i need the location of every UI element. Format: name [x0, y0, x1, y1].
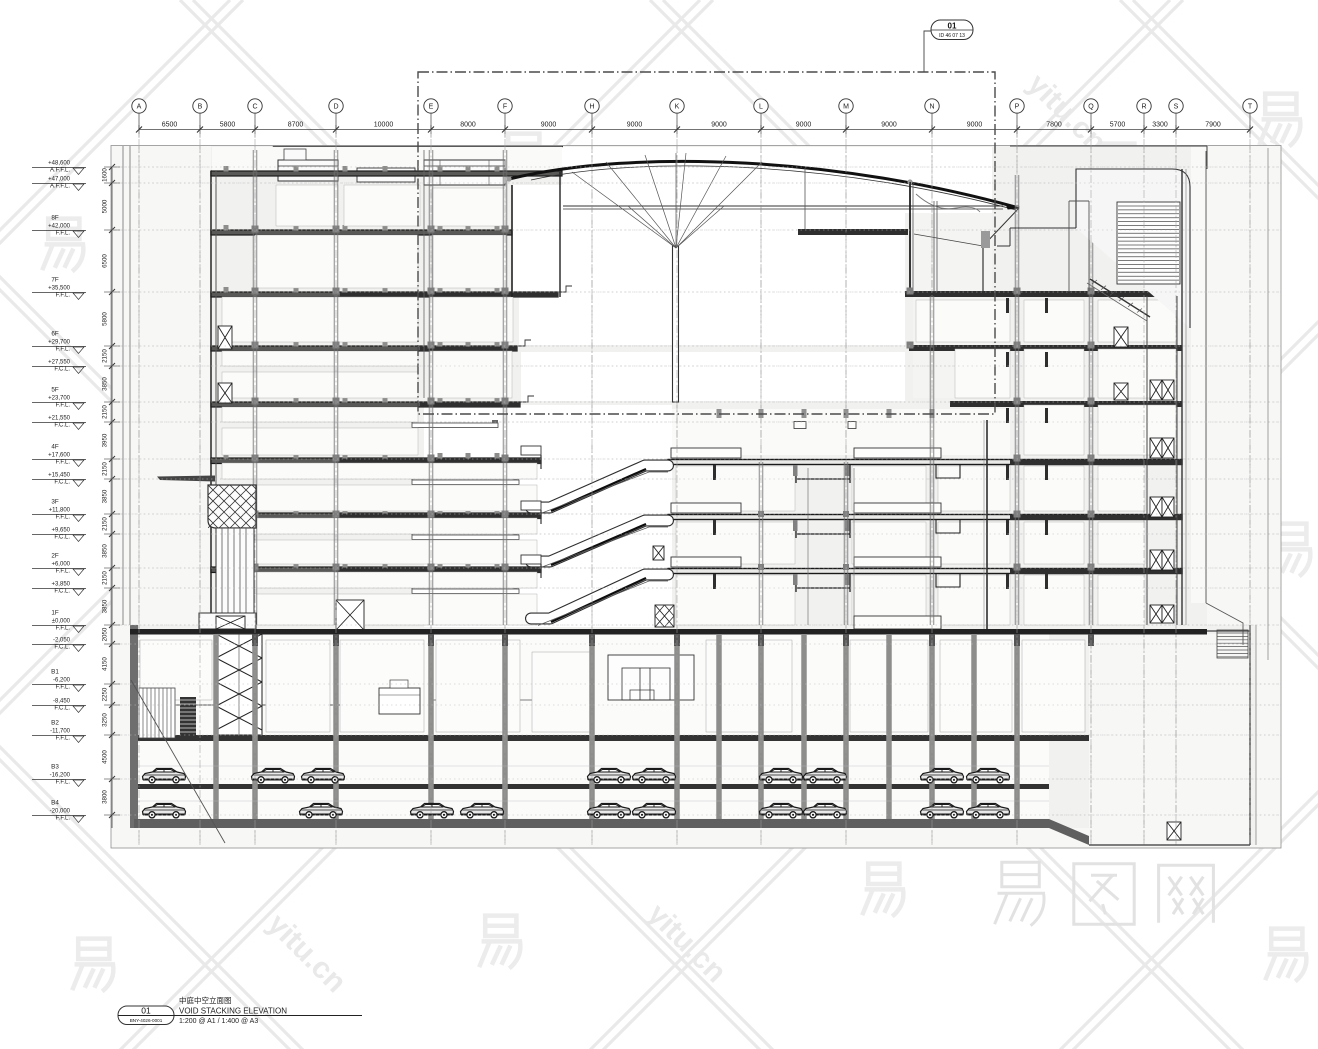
svg-text:10000: 10000 [374, 122, 394, 129]
svg-text:L: L [759, 104, 763, 111]
svg-text:5F: 5F [51, 387, 59, 394]
svg-text:6500: 6500 [162, 122, 178, 129]
svg-text:2250: 2250 [102, 687, 109, 701]
svg-text:F: F [503, 104, 507, 111]
svg-text:S: S [1174, 104, 1179, 111]
svg-text:F.C.L.: F.C.L. [54, 645, 70, 651]
svg-text:A: A [137, 104, 142, 111]
svg-text:N: N [929, 104, 934, 111]
svg-text:01: 01 [141, 1006, 151, 1016]
svg-text:1600: 1600 [102, 168, 109, 182]
svg-text:F.F.L.: F.F.L. [56, 293, 71, 299]
svg-text:+3,850: +3,850 [51, 582, 70, 588]
svg-text:3300: 3300 [1152, 122, 1168, 129]
svg-text:2150: 2150 [102, 349, 109, 363]
svg-text:F.F.L.: F.F.L. [56, 403, 71, 409]
svg-text:+21,550: +21,550 [48, 416, 71, 422]
svg-text:9000: 9000 [967, 122, 983, 129]
svg-text:8000: 8000 [460, 122, 476, 129]
svg-text:2150: 2150 [102, 571, 109, 585]
svg-text:VOID STACKING ELEVATION: VOID STACKING ELEVATION [179, 1007, 287, 1016]
svg-text:F.F.L.: F.F.L. [56, 515, 71, 521]
svg-text:-8,450: -8,450 [53, 699, 71, 705]
svg-text:6F: 6F [51, 331, 59, 338]
svg-text:9000: 9000 [711, 122, 727, 129]
svg-text:1:200 @ A1 / 1:400 @ A3: 1:200 @ A1 / 1:400 @ A3 [179, 1018, 258, 1025]
svg-text:F.F.L.: F.F.L. [56, 736, 71, 742]
svg-text:+23,700: +23,700 [48, 396, 71, 402]
svg-text:+6,000: +6,000 [51, 562, 70, 568]
svg-text:-2,050: -2,050 [53, 638, 71, 644]
svg-text:D: D [333, 104, 338, 111]
svg-text:Q: Q [1088, 104, 1094, 111]
svg-text:3850: 3850 [102, 489, 109, 503]
svg-text:B2: B2 [51, 720, 59, 727]
svg-text:M: M [843, 104, 849, 111]
svg-text:F.F.L.: F.F.L. [56, 780, 71, 786]
svg-text:+48,600: +48,600 [48, 161, 71, 167]
svg-text:7F: 7F [51, 277, 59, 284]
svg-text:R: R [1141, 104, 1146, 111]
svg-text:+47,000: +47,000 [48, 177, 71, 183]
svg-text:BNY-4026-0001: BNY-4026-0001 [130, 1018, 163, 1023]
svg-text:3F: 3F [51, 499, 59, 506]
svg-text:9000: 9000 [541, 122, 557, 129]
svg-text:3850: 3850 [102, 377, 109, 391]
svg-text:3850: 3850 [102, 544, 109, 558]
svg-text:6500: 6500 [102, 254, 109, 268]
svg-text:3250: 3250 [102, 713, 109, 727]
svg-text:7800: 7800 [1046, 122, 1062, 129]
svg-text:-6,200: -6,200 [53, 678, 71, 684]
svg-text:+27,550: +27,550 [48, 360, 71, 366]
svg-text:2F: 2F [51, 553, 59, 560]
svg-text:K: K [675, 104, 680, 111]
svg-text:A.F.F.L.: A.F.F.L. [50, 184, 70, 190]
svg-text:F.F.L.: F.F.L. [56, 231, 71, 237]
svg-text:4500: 4500 [102, 750, 109, 764]
svg-text:B1: B1 [51, 669, 59, 676]
svg-text:9000: 9000 [796, 122, 812, 129]
svg-text:±0,000: ±0,000 [52, 619, 71, 625]
svg-text:F.C.L.: F.C.L. [54, 706, 70, 712]
svg-text:-20,000: -20,000 [50, 809, 71, 815]
svg-text:B4: B4 [51, 800, 59, 807]
svg-text:5700: 5700 [1110, 122, 1126, 129]
svg-text:B: B [198, 104, 203, 111]
svg-text:F.C.L.: F.C.L. [54, 535, 70, 541]
svg-text:4150: 4150 [102, 657, 109, 671]
svg-text:9000: 9000 [627, 122, 643, 129]
svg-text:2150: 2150 [102, 405, 109, 419]
svg-text:+9,650: +9,650 [51, 528, 70, 534]
svg-text:8700: 8700 [288, 122, 304, 129]
svg-text:3950: 3950 [102, 433, 109, 447]
svg-text:B3: B3 [51, 764, 59, 771]
svg-text:H: H [589, 104, 594, 111]
svg-text:2150: 2150 [102, 462, 109, 476]
svg-text:F.F.L.: F.F.L. [56, 347, 71, 353]
svg-text:3850: 3850 [102, 599, 109, 613]
svg-text:5800: 5800 [102, 312, 109, 326]
svg-text:F.C.L.: F.C.L. [54, 367, 70, 373]
svg-text:2050: 2050 [102, 627, 109, 641]
svg-text:-11,700: -11,700 [50, 729, 71, 735]
svg-text:F.C.L.: F.C.L. [54, 423, 70, 429]
svg-text:+17,600: +17,600 [48, 453, 71, 459]
svg-text:+42,000: +42,000 [48, 224, 71, 230]
svg-text:F.F.L.: F.F.L. [56, 569, 71, 575]
svg-text:F.F.L.: F.F.L. [56, 626, 71, 632]
svg-text:01: 01 [948, 22, 957, 31]
svg-text:F.F.L.: F.F.L. [56, 685, 71, 691]
svg-text:C: C [252, 104, 257, 111]
svg-text:+15,450: +15,450 [48, 473, 71, 479]
svg-text:E: E [429, 104, 434, 111]
svg-text:A.F.F.L.: A.F.F.L. [50, 168, 70, 174]
svg-text:7900: 7900 [1205, 122, 1221, 129]
svg-text:F.F.L.: F.F.L. [56, 816, 71, 822]
svg-text:F.C.L.: F.C.L. [54, 589, 70, 595]
svg-text:+29,700: +29,700 [48, 340, 71, 346]
svg-text:ID 46 07 13: ID 46 07 13 [939, 33, 965, 39]
svg-text:4F: 4F [51, 444, 59, 451]
svg-text:5800: 5800 [220, 122, 236, 129]
svg-text:P: P [1015, 104, 1020, 111]
svg-text:+11,800: +11,800 [49, 508, 71, 514]
svg-text:F.F.L.: F.F.L. [56, 460, 71, 466]
svg-text:5000: 5000 [102, 199, 109, 213]
svg-text:3800: 3800 [102, 790, 109, 804]
svg-text:中庭中空立面图: 中庭中空立面图 [179, 995, 232, 1005]
svg-text:T: T [1248, 104, 1253, 111]
svg-text:F.C.L.: F.C.L. [54, 480, 70, 486]
svg-text:9000: 9000 [881, 122, 897, 129]
svg-text:-16,200: -16,200 [50, 773, 71, 779]
svg-text:8F: 8F [51, 215, 59, 222]
svg-text:+35,500: +35,500 [48, 286, 71, 292]
svg-text:2150: 2150 [102, 517, 109, 531]
svg-text:1F: 1F [51, 610, 59, 617]
